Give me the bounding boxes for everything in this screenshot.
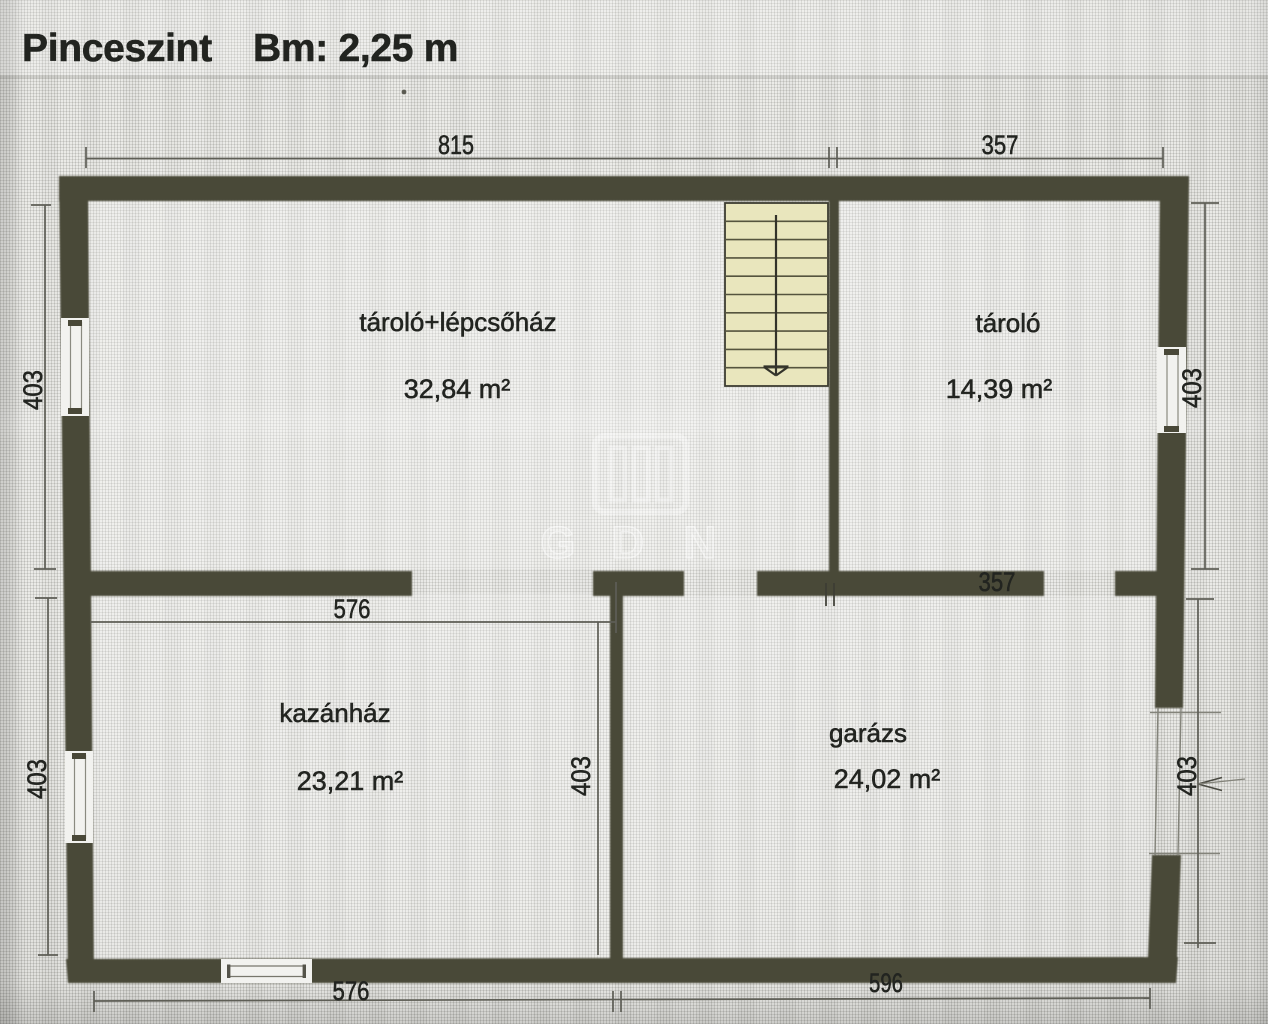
svg-text:357: 357: [979, 567, 1016, 597]
svg-text:576: 576: [334, 594, 371, 624]
svg-text:815: 815: [438, 130, 474, 160]
svg-text:tároló: tároló: [975, 308, 1040, 338]
svg-text:596: 596: [869, 968, 903, 998]
svg-text:403: 403: [1177, 368, 1207, 408]
svg-text:garázs: garázs: [829, 718, 907, 748]
svg-text:403: 403: [18, 370, 48, 410]
svg-text:403: 403: [1172, 756, 1202, 796]
svg-text:403: 403: [22, 759, 52, 799]
svg-text:24,02 m²: 24,02 m²: [834, 764, 941, 794]
svg-text:23,21 m²: 23,21 m²: [297, 766, 404, 796]
svg-text:357: 357: [982, 130, 1019, 160]
svg-text:14,39 m²: 14,39 m²: [946, 374, 1053, 404]
svg-text:576: 576: [333, 976, 370, 1006]
svg-text:kazánház: kazánház: [279, 698, 390, 728]
svg-text:tároló+lépcsőház: tároló+lépcsőház: [359, 307, 556, 337]
svg-text:403: 403: [566, 756, 596, 796]
svg-text:32,84 m²: 32,84 m²: [404, 374, 511, 404]
